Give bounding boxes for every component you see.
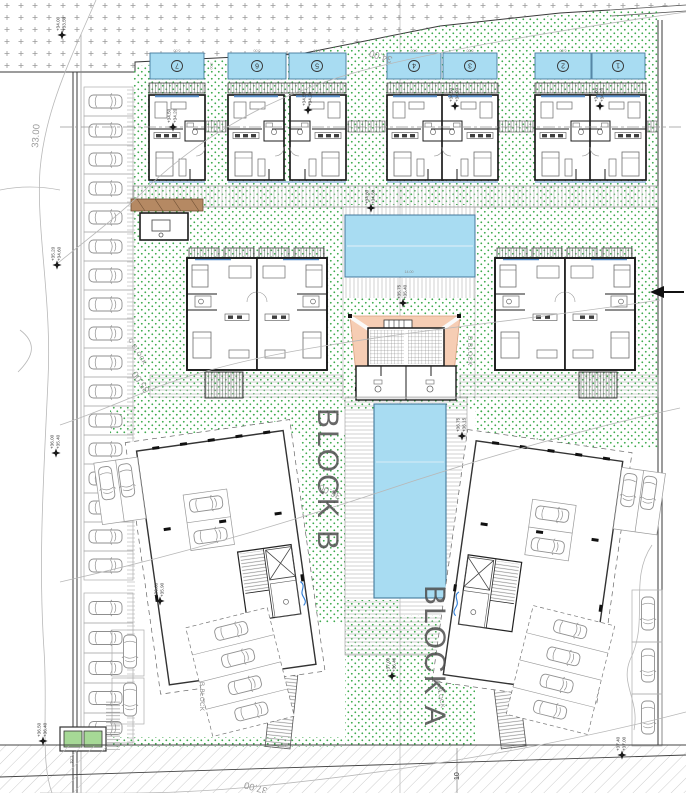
svg-text:+36.40: +36.40 xyxy=(43,722,48,737)
villa-unit-3 xyxy=(442,95,498,180)
svg-text:+34.50: +34.50 xyxy=(302,91,307,106)
villa-unit-1 xyxy=(590,95,646,180)
svg-text:+35.90: +35.90 xyxy=(160,582,165,597)
car-icon xyxy=(89,630,122,646)
car-icon xyxy=(89,238,122,254)
car-icon xyxy=(640,701,656,734)
svg-text:+34.50: +34.50 xyxy=(594,87,599,102)
pool-number-6: 6 xyxy=(255,62,259,69)
d-block-left-unit xyxy=(495,258,565,370)
villa-unit-2 xyxy=(535,95,591,180)
svg-text:+37.00: +37.00 xyxy=(622,736,627,751)
svg-text:+34.80: +34.80 xyxy=(365,189,370,204)
c-block-right-unit xyxy=(257,258,327,370)
svg-text:+34.50: +34.50 xyxy=(371,189,376,204)
car-icon xyxy=(89,267,122,283)
svg-text:+34.00: +34.00 xyxy=(56,16,61,31)
block-b-label: BLOCK B xyxy=(311,408,344,552)
c-block-left-unit xyxy=(187,258,257,370)
svg-text:+34.50: +34.50 xyxy=(167,108,172,123)
car-icon xyxy=(89,441,122,457)
pool-dim: 6.00 xyxy=(254,49,261,53)
car-icon xyxy=(640,597,656,630)
svg-text:+36.60: +36.60 xyxy=(154,582,159,597)
pool-number-5: 5 xyxy=(315,62,319,69)
car-icon xyxy=(89,122,122,138)
d-block-right-unit xyxy=(565,258,635,370)
crosswalk xyxy=(106,700,120,750)
road-dim-label: 10 xyxy=(454,772,461,780)
villa-unit-5 xyxy=(290,95,346,180)
pool-number-4: 4 xyxy=(412,62,416,69)
car-icon xyxy=(89,412,122,428)
car-icon xyxy=(89,660,122,676)
car-icon xyxy=(89,180,122,196)
main-pool xyxy=(374,404,446,598)
svg-text:+36.40: +36.40 xyxy=(392,657,397,672)
elevation-marker: +36.00+35.40 xyxy=(50,434,61,457)
pool-dim: 6.00 xyxy=(314,49,321,53)
pool-number-3: 3 xyxy=(468,62,472,69)
svg-text:+36.75: +36.75 xyxy=(456,417,461,432)
car-icon xyxy=(89,383,122,399)
pool-dim: 6.00 xyxy=(560,49,567,53)
svg-text:+34.20: +34.20 xyxy=(308,91,313,106)
car-icon xyxy=(122,635,138,668)
villa-unit-7 xyxy=(149,95,205,180)
svg-text:+34.60: +34.60 xyxy=(57,246,62,261)
svg-text:+37.00: +37.00 xyxy=(386,657,391,672)
car-icon xyxy=(89,600,122,616)
svg-text:+34.20: +34.20 xyxy=(600,87,605,102)
svg-text:+37.40: +37.40 xyxy=(616,736,621,751)
pool-number-2: 2 xyxy=(561,62,565,69)
svg-text:+35.75: +35.75 xyxy=(397,284,402,299)
villa-unit-4 xyxy=(387,95,443,180)
pool-number-7: 7 xyxy=(175,62,179,69)
svg-text:+36.00: +36.00 xyxy=(50,434,55,449)
block-a-core xyxy=(458,555,521,632)
upper-shared-pool-area: 14.00 xyxy=(343,207,475,298)
block-a-label: BLOCK A xyxy=(418,585,451,727)
pool-dim: 6.00 xyxy=(174,49,181,53)
guard-house xyxy=(140,213,188,240)
svg-text:+35.40: +35.40 xyxy=(403,284,408,299)
upper-pool-dim: 14.00 xyxy=(405,270,414,274)
car-icon xyxy=(89,93,122,109)
south-road xyxy=(0,745,686,793)
pavilion-wc xyxy=(356,366,456,400)
d-block-stairs xyxy=(579,372,617,398)
site-plan-drawing: 7 6 5 4 3 2 1 6.00 6.00 6.00 6.00 6.00 6… xyxy=(0,0,686,793)
pool-dim: 6.00 xyxy=(467,49,474,53)
svg-text:+34.20: +34.20 xyxy=(173,108,178,123)
pool-dim: 6.00 xyxy=(615,49,622,53)
svg-text:+35.20: +35.20 xyxy=(51,246,56,261)
elevation-marker: +35.20+34.60 xyxy=(51,246,62,269)
svg-text:+34.20: +34.20 xyxy=(455,87,460,102)
car-icon xyxy=(89,325,122,341)
svg-text:+33.50: +33.50 xyxy=(62,16,67,31)
elevation-marker: +36.50+36.40 xyxy=(37,722,48,745)
guard-desk xyxy=(152,220,170,231)
car-icon xyxy=(89,354,122,370)
car-icon xyxy=(89,151,122,167)
svg-text:+36.15: +36.15 xyxy=(462,417,467,432)
d-block-label: D BLOCK xyxy=(466,336,472,366)
block-b-core xyxy=(238,545,301,622)
svg-text:+34.50: +34.50 xyxy=(449,87,454,102)
car-icon xyxy=(89,209,122,225)
pool-pavilion xyxy=(348,314,461,400)
car-icon xyxy=(89,296,122,312)
car-icon xyxy=(122,683,138,716)
svg-text:+36.50: +36.50 xyxy=(37,722,42,737)
car-icon xyxy=(89,528,122,544)
villa-unit-6 xyxy=(228,95,284,180)
c-block-stairs xyxy=(205,372,243,398)
car-icon xyxy=(640,649,656,682)
pavilion-grill xyxy=(384,320,412,328)
pool-dim: 6.00 xyxy=(411,49,418,53)
site-plan-sheet: 7 6 5 4 3 2 1 6.00 6.00 6.00 6.00 6.00 6… xyxy=(0,0,686,793)
pool-number-1: 1 xyxy=(616,62,620,69)
svg-text:+35.40: +35.40 xyxy=(56,434,61,449)
left-parking-column xyxy=(84,87,144,743)
b-block-small-label: B BLOCK xyxy=(198,682,204,712)
contour-label-33: 33.00 xyxy=(30,124,43,148)
pool-dim-side: 3.00 xyxy=(209,63,213,70)
